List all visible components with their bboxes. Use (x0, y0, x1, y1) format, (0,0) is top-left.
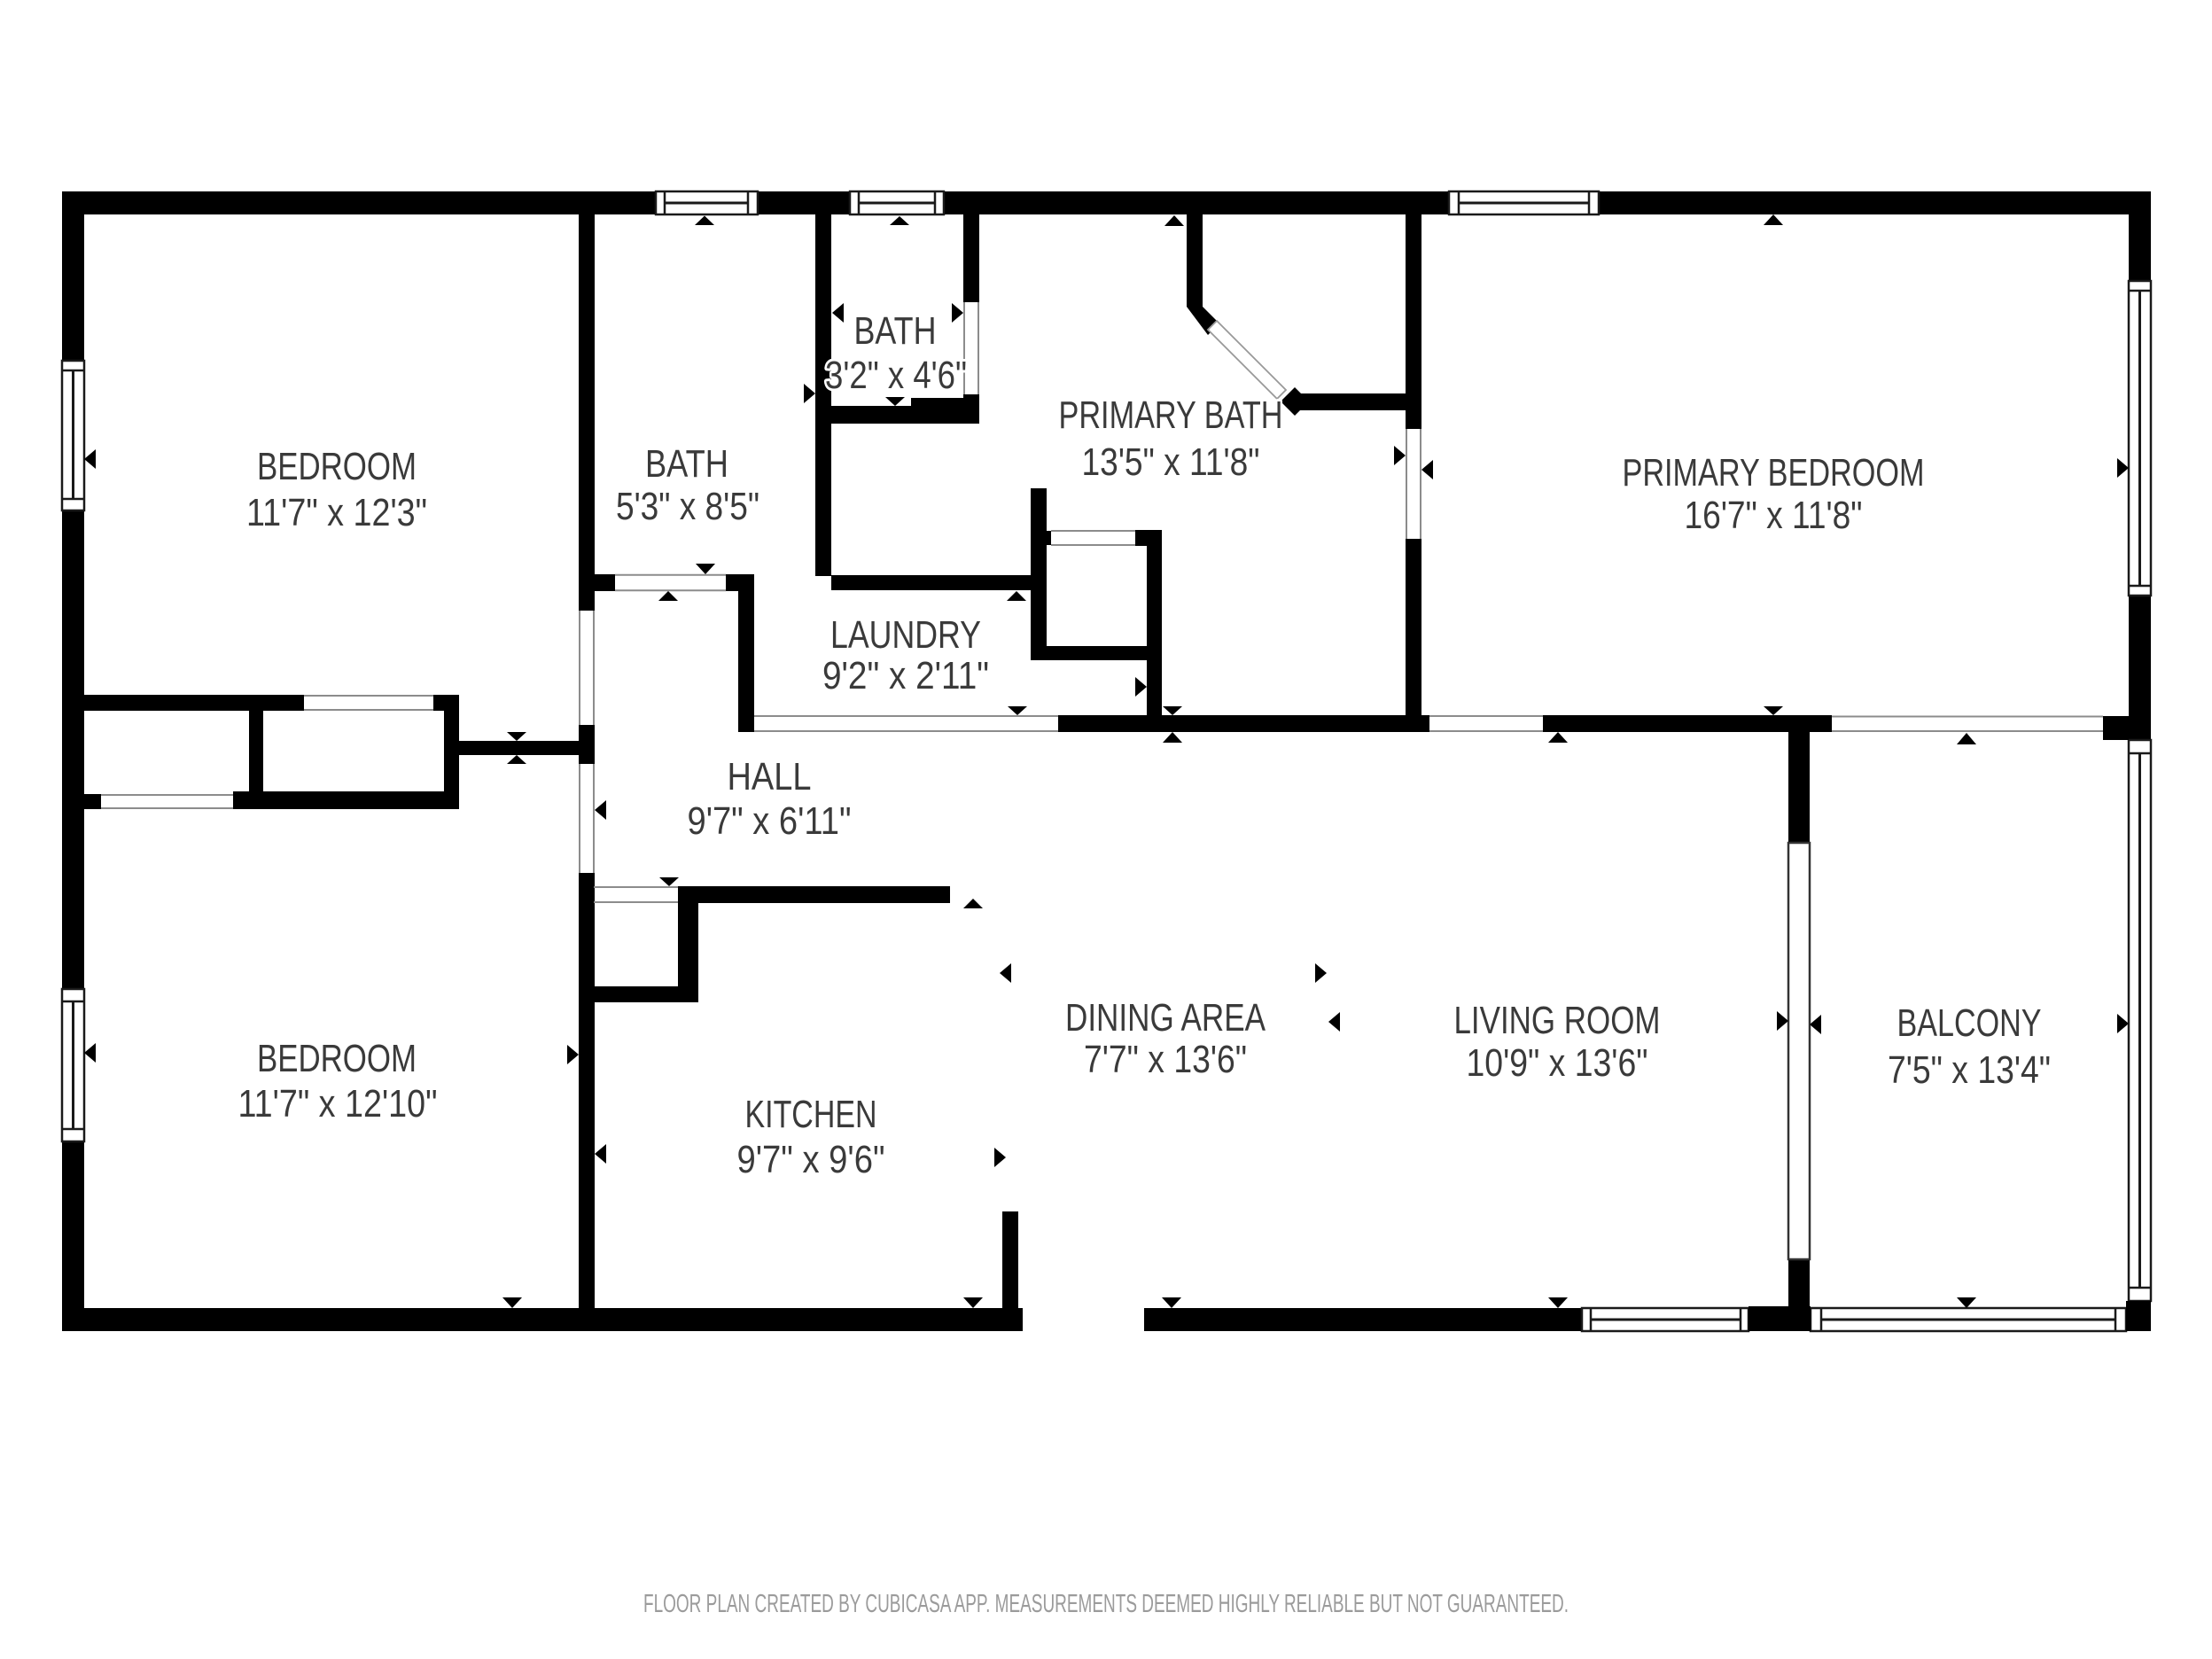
svg-text:9'7" x 6'11": 9'7" x 6'11" (688, 799, 852, 843)
svg-text:3'2" x 4'6": 3'2" x 4'6" (825, 354, 967, 397)
svg-text:7'7" x 13'6": 7'7" x 13'6" (1084, 1038, 1247, 1081)
svg-text:11'7" x 12'10": 11'7" x 12'10" (238, 1082, 438, 1125)
svg-text:HALL: HALL (728, 755, 812, 798)
svg-text:9'7" x 9'6": 9'7" x 9'6" (737, 1138, 885, 1181)
svg-text:7'5" x 13'4": 7'5" x 13'4" (1888, 1048, 2051, 1092)
svg-text:BEDROOM: BEDROOM (257, 445, 417, 488)
svg-text:DINING AREA: DINING AREA (1065, 996, 1266, 1040)
svg-text:BATH: BATH (854, 309, 937, 353)
svg-text:16'7" x 11'8": 16'7" x 11'8" (1685, 494, 1863, 537)
svg-text:5'3" x 8'5": 5'3" x 8'5" (616, 485, 759, 528)
svg-text:KITCHEN: KITCHEN (745, 1093, 877, 1136)
svg-text:11'7" x 12'3": 11'7" x 12'3" (246, 491, 427, 534)
svg-text:9'2" x 2'11": 9'2" x 2'11" (822, 654, 989, 697)
svg-text:BATH: BATH (645, 442, 728, 486)
svg-text:PRIMARY BEDROOM: PRIMARY BEDROOM (1623, 451, 1925, 495)
svg-text:BEDROOM: BEDROOM (257, 1037, 417, 1080)
svg-text:13'5" x 11'8": 13'5" x 11'8" (1082, 440, 1260, 484)
svg-text:LIVING ROOM: LIVING ROOM (1454, 999, 1661, 1042)
svg-text:BALCONY: BALCONY (1897, 1001, 2042, 1045)
svg-text:10'9" x 13'6": 10'9" x 13'6" (1467, 1041, 1648, 1085)
svg-text:LAUNDRY: LAUNDRY (830, 613, 981, 657)
svg-text:PRIMARY BATH: PRIMARY BATH (1059, 393, 1283, 437)
svg-text:FLOOR PLAN CREATED BY CUBICASA: FLOOR PLAN CREATED BY CUBICASA APP. MEAS… (643, 1590, 1569, 1618)
